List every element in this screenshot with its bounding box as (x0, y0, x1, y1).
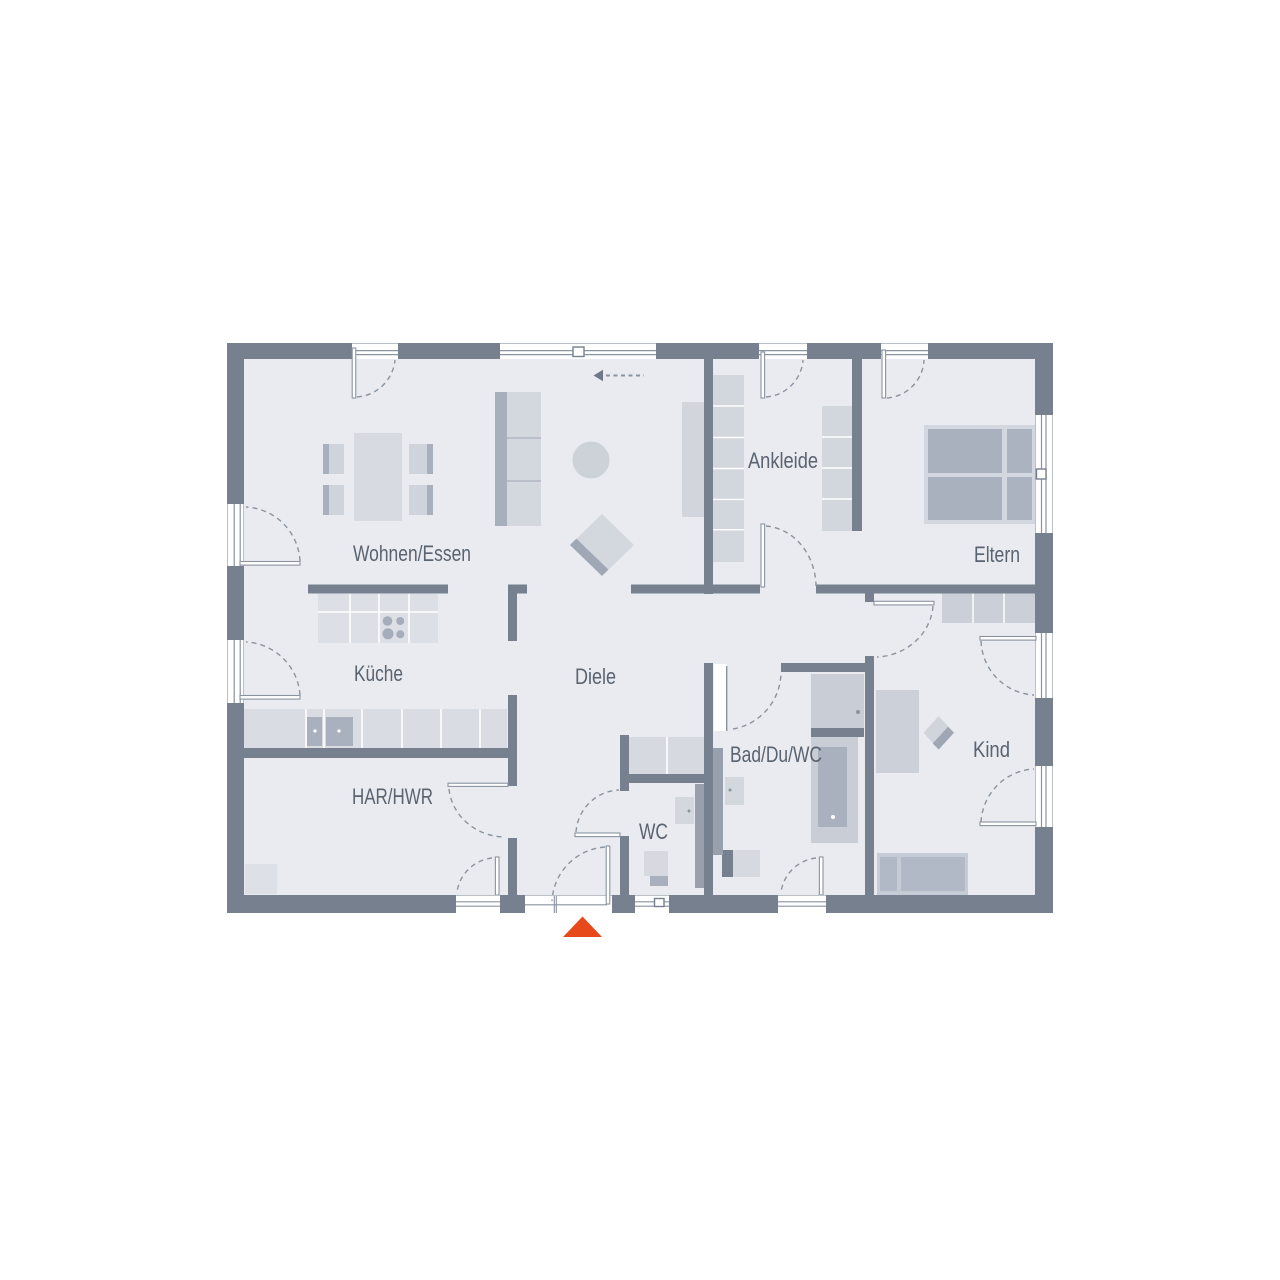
svg-text:WC: WC (639, 819, 668, 844)
svg-text:HAR/HWR: HAR/HWR (352, 784, 433, 809)
svg-text:Wohnen/Essen: Wohnen/Essen (353, 541, 471, 566)
svg-text:Ankleide: Ankleide (748, 448, 818, 473)
svg-text:Eltern: Eltern (974, 542, 1020, 567)
svg-text:Diele: Diele (575, 664, 616, 689)
svg-text:Kind: Kind (973, 737, 1010, 762)
svg-text:Bad/Du/WC: Bad/Du/WC (730, 742, 822, 767)
svg-text:Küche: Küche (354, 661, 403, 686)
